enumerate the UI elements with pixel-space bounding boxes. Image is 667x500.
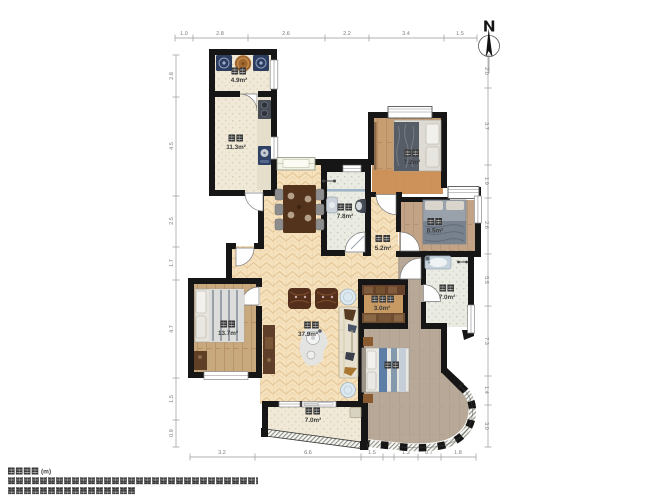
svg-text:2.6: 2.6 bbox=[282, 31, 290, 37]
svg-text:11.3m²: 11.3m² bbox=[226, 144, 246, 151]
svg-text:4.7: 4.7 bbox=[169, 325, 175, 333]
svg-text:3.0m²: 3.0m² bbox=[374, 305, 390, 312]
svg-text:5.5: 5.5 bbox=[483, 276, 489, 284]
svg-text:0.9: 0.9 bbox=[169, 429, 175, 437]
svg-text:1.4: 1.4 bbox=[483, 386, 489, 394]
svg-text:3.7: 3.7 bbox=[483, 122, 489, 130]
svg-text:4.9m²: 4.9m² bbox=[231, 77, 247, 84]
svg-text:7.0m²: 7.0m² bbox=[439, 294, 455, 301]
svg-text:7.3: 7.3 bbox=[483, 337, 489, 345]
svg-text:1.9: 1.9 bbox=[483, 177, 489, 185]
svg-text:1.5: 1.5 bbox=[456, 31, 464, 37]
svg-text:1.5: 1.5 bbox=[368, 450, 376, 456]
svg-text:2.6: 2.6 bbox=[483, 221, 489, 229]
svg-text:1.7: 1.7 bbox=[169, 259, 175, 267]
svg-text:4.5: 4.5 bbox=[169, 142, 175, 150]
svg-text:37.9m²: 37.9m² bbox=[298, 331, 318, 338]
svg-text:7.0m²: 7.0m² bbox=[305, 417, 321, 424]
svg-text:7.2m²: 7.2m² bbox=[404, 159, 420, 166]
svg-text:1.0: 1.0 bbox=[180, 31, 188, 37]
svg-text:6.6: 6.6 bbox=[304, 450, 312, 456]
svg-text:2.0: 2.0 bbox=[483, 67, 489, 75]
svg-text:13.7m²: 13.7m² bbox=[218, 330, 238, 337]
svg-text:2.2: 2.2 bbox=[343, 31, 351, 37]
svg-text:2.8: 2.8 bbox=[216, 31, 224, 37]
svg-text:(m): (m) bbox=[41, 469, 51, 476]
svg-text:3.2: 3.2 bbox=[218, 450, 226, 456]
svg-text:3.0: 3.0 bbox=[483, 422, 489, 430]
svg-text:2.5: 2.5 bbox=[169, 217, 175, 225]
svg-text:7.8m²: 7.8m² bbox=[337, 213, 353, 220]
svg-text:8.5m²: 8.5m² bbox=[427, 228, 443, 235]
svg-text:2.8: 2.8 bbox=[169, 72, 175, 80]
svg-text:3.4: 3.4 bbox=[402, 31, 410, 37]
svg-text:5.2m²: 5.2m² bbox=[375, 245, 391, 252]
svg-text:1.5: 1.5 bbox=[169, 395, 175, 403]
svg-text:1.8: 1.8 bbox=[454, 450, 462, 456]
